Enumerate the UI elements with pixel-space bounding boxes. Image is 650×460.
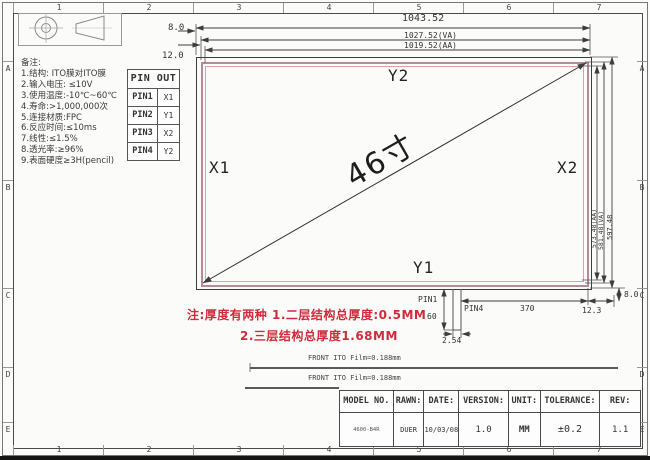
pin-signal: X1 — [158, 89, 179, 106]
electrode-label-y2: Y2 — [388, 66, 409, 85]
grid-col-bottom: 1 — [13, 445, 104, 455]
grid-row-right: B — [637, 180, 647, 192]
note-line: 3.使用温度:-10℃~60℃ — [21, 91, 139, 102]
grid-col-bottom: 3 — [193, 445, 284, 455]
titleblock-col-unit: UNIT: MM — [508, 391, 540, 446]
note-line: 8.透光率:≥96% — [21, 145, 139, 156]
pin-name: PIN4 — [128, 143, 158, 160]
electrode-label-y1: Y1 — [413, 258, 434, 277]
pin-name: PIN2 — [128, 107, 158, 124]
dim-va-height: 581.48(VA) — [597, 211, 605, 250]
grid-col-top: 2 — [103, 3, 194, 13]
pinout-table: PIN OUT PIN1 X1 PIN2 Y1 PIN3 X2 PIN4 Y2 — [127, 69, 180, 161]
grid-row-left: B — [3, 180, 13, 192]
pin-signal: X2 — [158, 125, 179, 142]
titleblock-header: REV: — [600, 391, 640, 413]
film-label-1: FRONT ITO Film=0.188mm — [308, 354, 401, 362]
titleblock-value: 1.0 — [459, 413, 508, 446]
note-line: 2.输入电压: ≤10V — [21, 80, 139, 91]
titleblock-header: UNIT: — [509, 391, 540, 413]
dim-aa-width: 1019.52(AA) — [404, 41, 457, 50]
grid-col-top: 4 — [283, 3, 374, 13]
dim-tail-height: 60 — [427, 312, 437, 321]
grid-col-top: 6 — [463, 3, 554, 13]
title-block: MODEL NO. 4600-B4R RAWN: DUER DATE: 10/0… — [339, 390, 641, 447]
note-line: 9.表面硬度≥3H(pencil) — [21, 156, 139, 167]
titleblock-value: 10/03/08 — [424, 413, 458, 446]
titleblock-value: DUER — [394, 413, 424, 446]
note-line: 6.反应时间:≤10ms — [21, 123, 139, 134]
table-row: PIN1 X1 — [128, 89, 179, 107]
note-line: 4.寿命:>1,000,000次 — [21, 102, 139, 113]
dim-overall-height: 597.48 — [606, 215, 614, 240]
film-label-2: FRONT ITO Film=0.188mm — [308, 374, 401, 382]
titleblock-value: ±0.2 — [541, 413, 600, 446]
titleblock-value: 4600-B4R — [340, 413, 393, 446]
table-row: PIN4 Y2 — [128, 143, 179, 160]
electrode-label-x1: X1 — [209, 158, 230, 177]
titleblock-header: RAWN: — [394, 391, 424, 413]
dim-pin-pitch: 2.54 — [442, 336, 461, 345]
grid-row-right: D — [637, 367, 647, 379]
titleblock-value: MM — [509, 413, 540, 446]
dim-top-gap: 8.0 — [168, 23, 184, 33]
pin-name: PIN1 — [128, 89, 158, 106]
table-row: PIN2 Y1 — [128, 107, 179, 125]
note-line: 7.线性:≤1.5% — [21, 134, 139, 145]
note-line: 1.结构: ITO膜对ITO膜 — [21, 69, 139, 80]
titleblock-header: TOLERANCE: — [541, 391, 600, 413]
grid-row-left: D — [3, 367, 13, 379]
tail-pin1-label: PIN1 — [418, 295, 437, 304]
grid-col-top: 3 — [193, 3, 284, 13]
notes-block: 备注: 1.结构: ITO膜对ITO膜 2.输入电压: ≤10V 3.使用温度:… — [21, 58, 139, 167]
titleblock-col-tolerance: TOLERANCE: ±0.2 — [540, 391, 600, 446]
grid-row-left: C — [3, 288, 13, 300]
grid-col-bottom: 2 — [103, 445, 194, 455]
titleblock-header: DATE: — [424, 391, 458, 413]
pin-signal: Y2 — [158, 143, 179, 160]
dim-corner-gap: 8.0 — [624, 290, 638, 299]
electrode-label-x2: X2 — [557, 158, 578, 177]
titleblock-col-date: DATE: 10/03/08 — [423, 391, 458, 446]
titleblock-col-rev: REV: 1.1 — [599, 391, 640, 446]
dim-top-gap2: 12.0 — [162, 51, 184, 61]
grid-col-top: 5 — [373, 3, 464, 13]
grid-col-top: 7 — [553, 3, 644, 13]
pin-name: PIN3 — [128, 125, 158, 142]
projection-symbol-box — [18, 13, 122, 46]
dim-overall-width: 1043.52 — [402, 13, 444, 24]
grid-row-left: A — [3, 61, 13, 73]
notes-title: 备注: — [21, 58, 139, 69]
tail-pin4-label: PIN4 — [464, 304, 483, 313]
grid-col-top: 1 — [13, 3, 104, 13]
grid-row-right: A — [637, 61, 647, 73]
thickness-note-line1: 注:厚度有两种 1.二层结构总厚度:0.5MM — [187, 306, 426, 323]
grid-row-right: C — [637, 288, 647, 300]
pin-signal: Y1 — [158, 107, 179, 124]
titleblock-col-drawn: RAWN: DUER — [393, 391, 424, 446]
screenshot-bottom-edge — [0, 456, 650, 460]
table-row: PIN3 X2 — [128, 125, 179, 143]
drawing-sheet: 1 2 3 4 5 6 7 1 2 3 4 5 6 7 A B C D E A … — [0, 0, 650, 460]
dim-tail-length: 370 — [520, 304, 534, 313]
titleblock-header: MODEL NO. — [340, 391, 393, 413]
dim-va-width: 1027.52(VA) — [404, 31, 457, 40]
note-line: 5.连接材质:FPC — [21, 113, 139, 124]
grid-row-left: E — [3, 422, 13, 434]
titleblock-col-model: MODEL NO. 4600-B4R — [340, 391, 393, 446]
dim-tail-offset: 12.3 — [582, 306, 601, 315]
pinout-header: PIN OUT — [128, 70, 179, 89]
titleblock-header: VERSION: — [459, 391, 508, 413]
titleblock-value: 1.1 — [600, 413, 640, 446]
thickness-note-line2: 2.三层结构总厚度1.68MM — [240, 327, 398, 344]
titleblock-col-version: VERSION: 1.0 — [458, 391, 508, 446]
